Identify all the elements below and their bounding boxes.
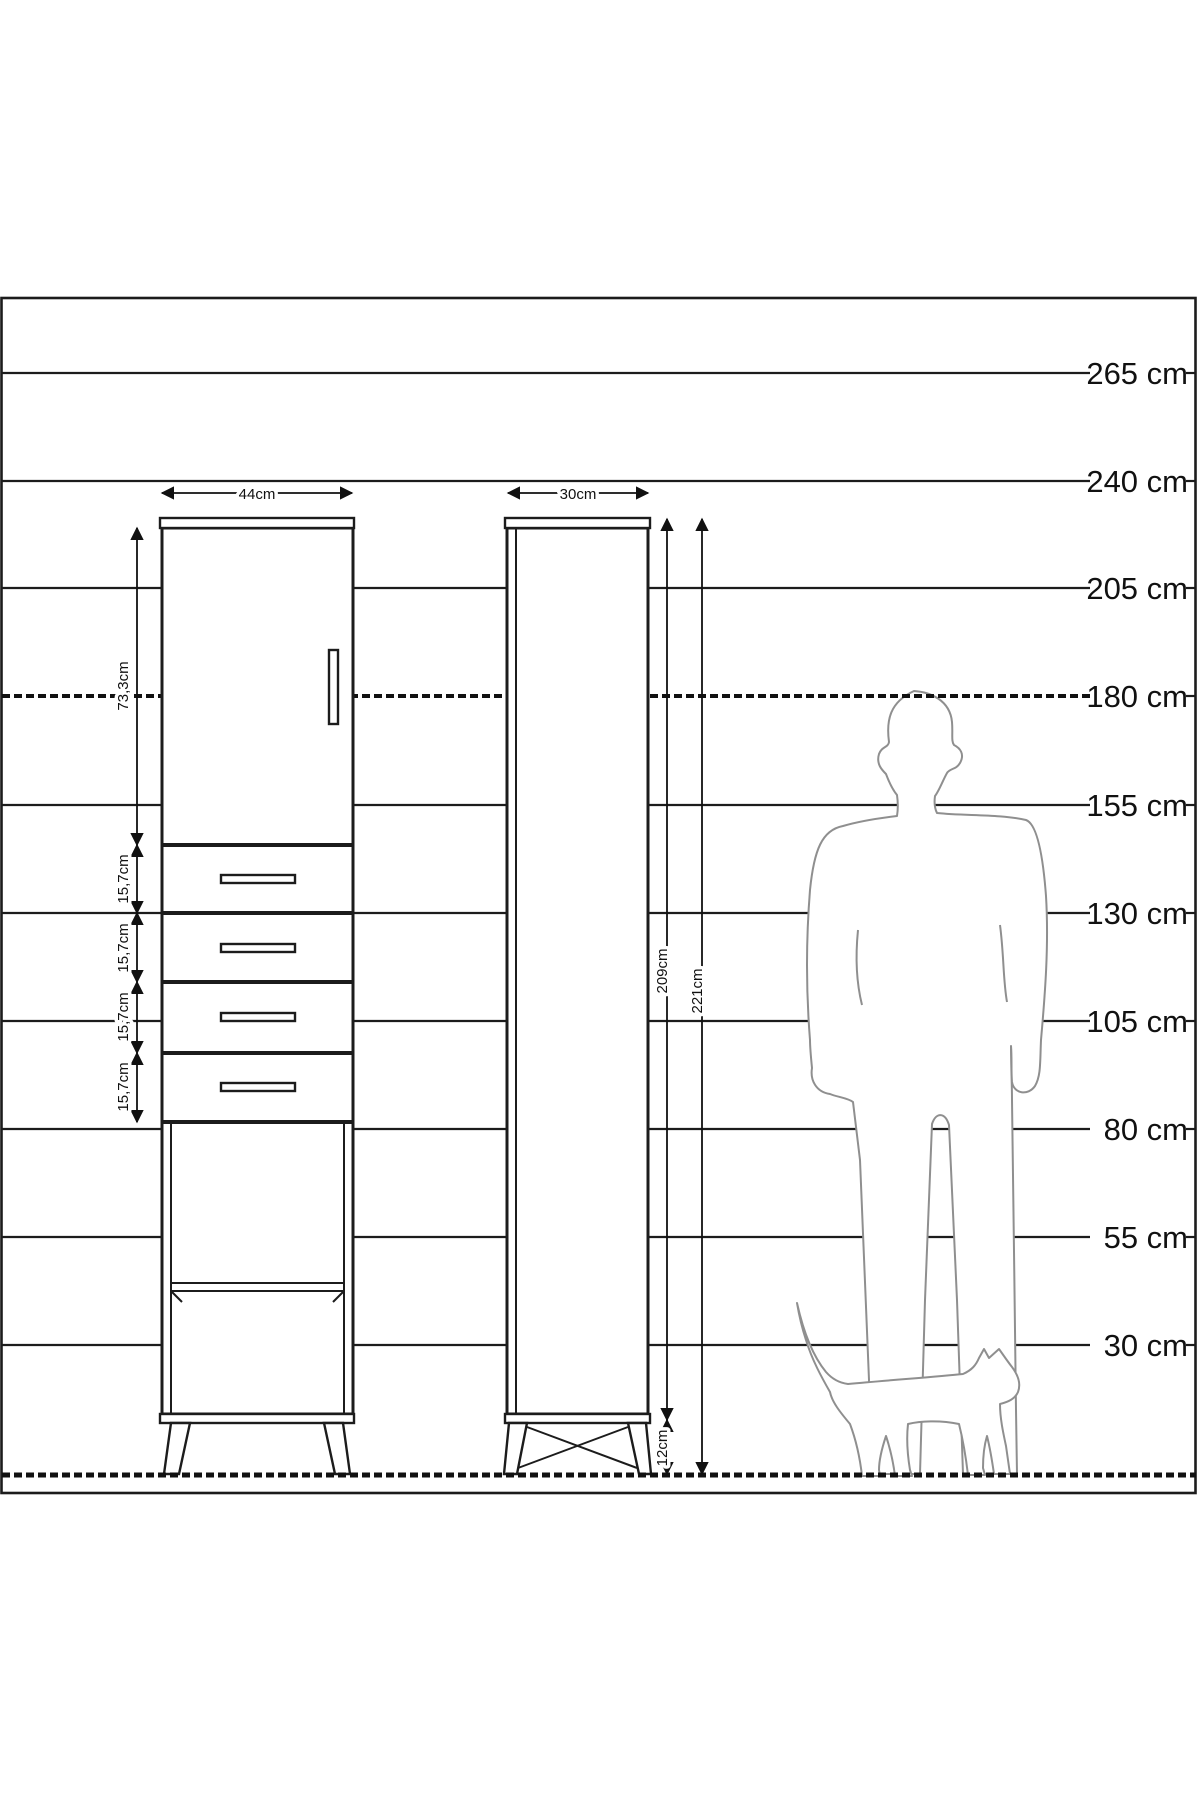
front-cabinet-body	[162, 528, 353, 1414]
ruler-label-105: 105 cm	[1086, 1004, 1188, 1039]
front-cabinet-top-board	[160, 518, 354, 528]
front-width-label: 44cm	[239, 486, 276, 503]
person-outline	[807, 691, 1047, 1474]
door-handle	[329, 650, 338, 724]
person-silhouette	[807, 691, 1047, 1474]
front-cabinet-bottom-board	[160, 1414, 354, 1423]
dimension-total-height: 221cm	[689, 519, 706, 1474]
drawer-height-label-1: 15,7cm	[115, 854, 132, 903]
front-view-cabinet	[160, 518, 354, 1474]
diagram-canvas: 265 cm 240 cm 205 cm 180 cm 155 cm 130 c…	[0, 0, 1200, 1800]
ruler-label-205: 205 cm	[1086, 571, 1188, 606]
dimension-body-height: 209cm	[654, 519, 671, 1420]
ruler-label-155: 155 cm	[1086, 788, 1188, 823]
drawer-handle-2	[221, 944, 295, 952]
ruler-labels: 265 cm 240 cm 205 cm 180 cm 155 cm 130 c…	[1086, 356, 1188, 1363]
ruler-label-180: 180 cm	[1086, 679, 1188, 714]
door-height-label: 73,3cm	[115, 661, 132, 710]
ruler-label-265: 265 cm	[1086, 356, 1188, 391]
side-cabinet-legs	[504, 1423, 651, 1474]
dimension-leg-height: 12cm	[654, 1420, 671, 1474]
drawer-handle-3	[221, 1013, 295, 1021]
leg-height-label: 12cm	[654, 1430, 671, 1467]
drawer-height-label-4: 15,7cm	[115, 1062, 132, 1111]
total-height-label: 221cm	[689, 968, 706, 1013]
side-view-cabinet	[504, 518, 651, 1474]
side-width-label: 30cm	[560, 486, 597, 503]
ruler-label-55: 55 cm	[1104, 1220, 1188, 1255]
dimension-diagram: 265 cm 240 cm 205 cm 180 cm 155 cm 130 c…	[0, 0, 1200, 1800]
dimension-front-chain: 73,3cm 15,7cm 15,7cm 15,7cm 15,7cm	[115, 528, 137, 1122]
dimension-side-width: 30cm	[508, 486, 648, 503]
side-cabinet-body	[507, 528, 648, 1414]
ruler-label-130: 130 cm	[1086, 896, 1188, 931]
drawer-handle-1	[221, 875, 295, 883]
front-cabinet-leg-right	[324, 1423, 350, 1474]
dimension-front-width: 44cm	[162, 486, 352, 503]
ruler-label-80: 80 cm	[1104, 1112, 1188, 1147]
front-cabinet-leg-left	[164, 1423, 190, 1474]
drawer-height-label-2: 15,7cm	[115, 923, 132, 972]
side-cabinet-bottom-board	[505, 1414, 650, 1423]
drawer-height-label-3: 15,7cm	[115, 992, 132, 1041]
body-height-label: 209cm	[654, 948, 671, 993]
side-cabinet-top-board	[505, 518, 650, 528]
ruler-label-30: 30 cm	[1104, 1328, 1188, 1363]
ruler-label-240: 240 cm	[1086, 464, 1188, 499]
drawer-handle-4	[221, 1083, 295, 1091]
